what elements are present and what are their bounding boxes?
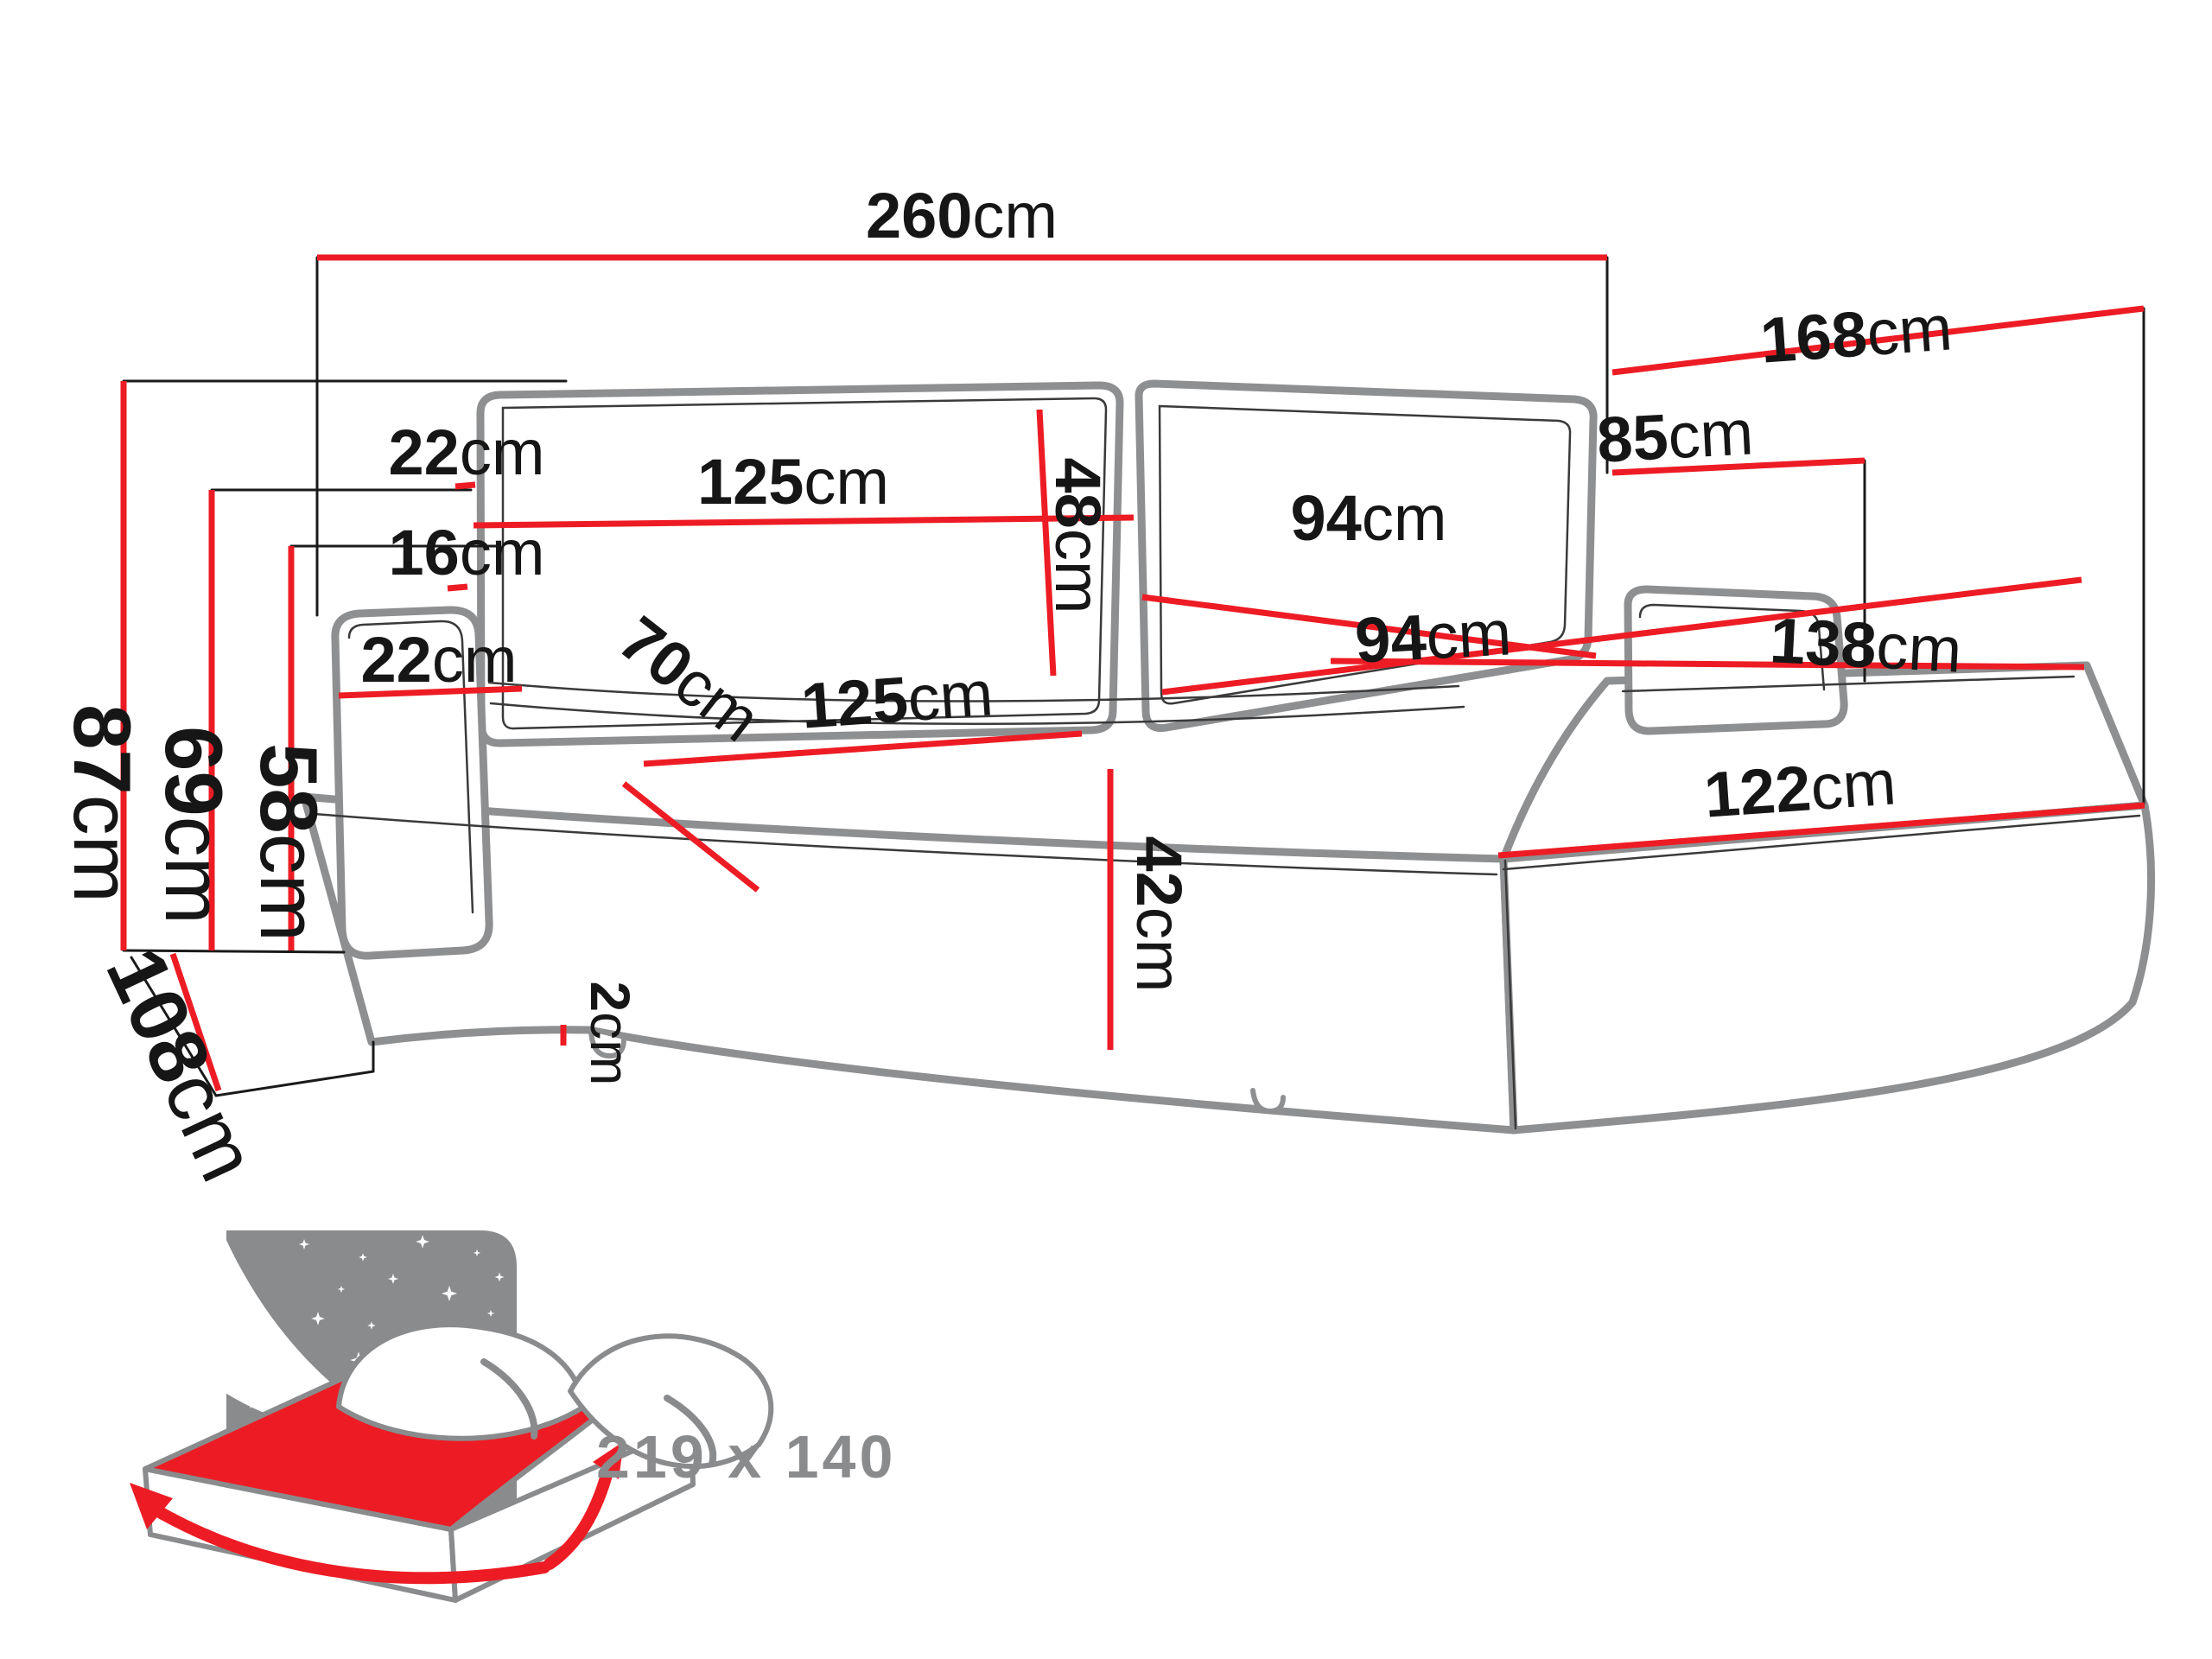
sleeping-area-size-label: 219 x 140 [596, 1423, 896, 1491]
dim-label-total-depth: 108cm [89, 935, 274, 1194]
dim-label-right-seat-width: 94cm [1353, 596, 1513, 676]
dim-label-back-cushion-thickness: 22cm [389, 416, 545, 488]
dim-label-total-width: 260cm [866, 180, 1058, 251]
dim-label-chaise-front-length: 122cm [1702, 746, 1898, 830]
dim-label-seat-height: 58cm [244, 743, 334, 942]
dim-label-total-height: 87cm [57, 704, 148, 903]
sofa-dimensions-diagram: 260cm 168cm 85cm 22cm 125cm 16cm 48cm 94… [0, 0, 2212, 1659]
dim-label-left-back-cushion-width: 125cm [697, 446, 889, 518]
dim-label-chaise-width: 138cm [1768, 604, 1963, 686]
chaise-front-face [1503, 805, 2152, 1130]
dim-label-chaise-back-height: 85cm [1595, 396, 1755, 475]
dim-label-seat-front-height: 42cm [1123, 836, 1195, 993]
dim-label-back-cushion-height: 48cm [1042, 458, 1114, 614]
dim-label-armrest-height: 69cm [149, 726, 239, 925]
diagram-svg: 260cm 168cm 85cm 22cm 125cm 16cm 48cm 94… [0, 0, 2212, 1659]
dim-label-floor-clearance: 2cm [579, 982, 641, 1086]
dim-label-backrest-gap: 16cm [389, 517, 545, 588]
dim-label-armrest-width: 22cm [361, 624, 518, 696]
sleeping-area-icon: 219 x 140 [130, 1217, 896, 1600]
right-back-cushion [1139, 384, 1593, 728]
dim-label-left-seat-width: 125cm [799, 657, 995, 741]
dim-label-right-back-cushion-width: 94cm [1291, 482, 1447, 554]
dim-label-chaise-length: 168cm [1758, 291, 1955, 376]
